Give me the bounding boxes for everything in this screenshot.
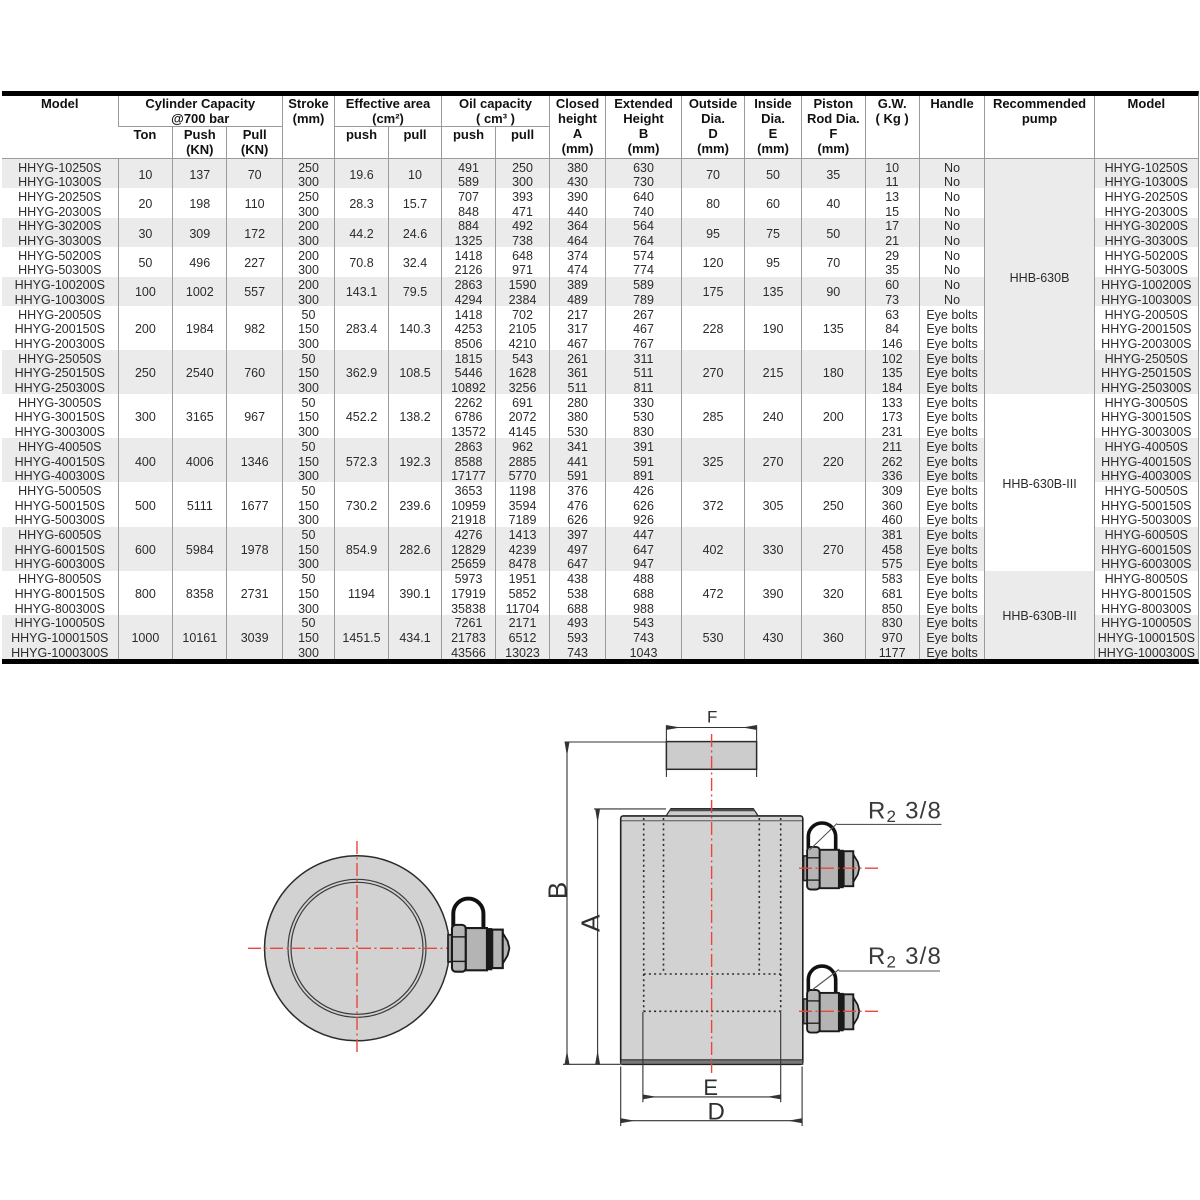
svg-text:E: E	[703, 1075, 718, 1100]
svg-text:A: A	[576, 914, 606, 932]
svg-text:F: F	[707, 708, 717, 727]
svg-text:R2 3/8: R2 3/8	[868, 798, 942, 827]
svg-text:D: D	[708, 1099, 725, 1126]
svg-text:R2 3/8: R2 3/8	[868, 943, 942, 972]
svg-text:B: B	[542, 882, 572, 899]
